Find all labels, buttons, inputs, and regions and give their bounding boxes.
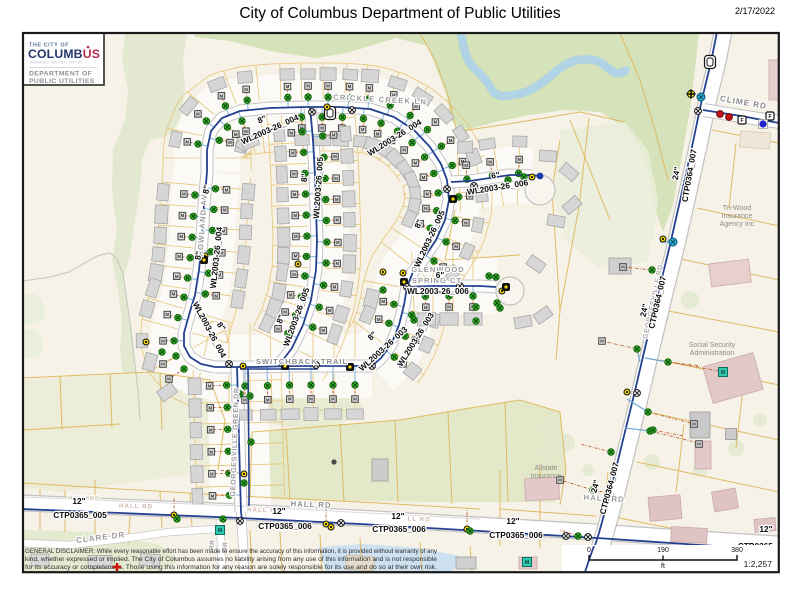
svg-text:M: M (422, 175, 426, 180)
svg-text:M: M (309, 397, 313, 402)
svg-text:M: M (331, 397, 335, 402)
svg-text:M: M (294, 254, 298, 259)
svg-text:M: M (210, 449, 214, 454)
svg-text:M: M (161, 362, 165, 367)
svg-text:M: M (218, 528, 222, 534)
svg-text:M: M (334, 176, 338, 181)
svg-text:M: M (361, 127, 365, 132)
svg-text:M: M (290, 130, 294, 135)
svg-text:M: M (181, 213, 185, 218)
svg-text:8": 8" (299, 173, 310, 182)
svg-text:M: M (336, 218, 340, 223)
svg-text:M: M (276, 326, 280, 331)
svg-text:M: M (424, 305, 428, 310)
svg-text:M: M (600, 339, 604, 344)
svg-text:M: M (208, 383, 212, 388)
svg-text:ft: ft (661, 563, 665, 570)
svg-text:M: M (326, 84, 330, 89)
svg-text:M: M (161, 338, 165, 343)
svg-text:Allstate: Allstate (535, 465, 558, 472)
svg-text:Insurance: Insurance (722, 213, 753, 220)
svg-text:M: M (335, 261, 339, 266)
svg-text:M: M (353, 397, 357, 402)
svg-text:M: M (333, 285, 337, 290)
svg-text:M: M (288, 397, 292, 402)
svg-text:M: M (424, 206, 428, 211)
svg-text:M: M (182, 192, 186, 197)
svg-text:M: M (211, 493, 215, 498)
svg-text:M: M (225, 187, 229, 192)
svg-text:M: M (243, 398, 247, 403)
svg-text:M: M (517, 157, 521, 162)
svg-text:M: M (286, 84, 290, 89)
svg-text:M: M (196, 112, 200, 117)
svg-text:M: M (177, 254, 181, 259)
svg-text:GENERAL DISCLAIMER: While ever: GENERAL DISCLAIMER: While every reasonab… (25, 548, 438, 555)
svg-text:SWITCHBACK TRAIL: SWITCHBACK TRAIL (256, 357, 348, 366)
svg-text:M: M (336, 240, 340, 245)
svg-text:for its accuracy or completene: for its accuracy or completeness. Those … (25, 564, 437, 571)
svg-text:12": 12" (72, 496, 85, 506)
svg-text:380: 380 (731, 547, 743, 554)
svg-text:HALL RD: HALL RD (119, 502, 153, 510)
svg-text:M: M (293, 213, 297, 218)
svg-text:M: M (175, 274, 179, 279)
svg-text:M: M (332, 133, 336, 138)
svg-text:M: M (434, 120, 438, 125)
svg-text:M: M (228, 140, 232, 145)
svg-text:PUBLIC UTILITIES: PUBLIC UTILITIES (29, 78, 95, 85)
svg-text:WL2003-26_006: WL2003-26_006 (407, 286, 469, 296)
svg-text:M: M (333, 154, 337, 159)
svg-text:M: M (426, 192, 430, 197)
svg-text:M: M (210, 471, 214, 476)
svg-text:Agency Inc: Agency Inc (720, 221, 755, 228)
svg-text:12": 12" (759, 524, 772, 534)
svg-text:M: M (292, 172, 296, 177)
svg-text:M: M (214, 293, 218, 298)
svg-text:M: M (209, 427, 213, 432)
svg-text:Administration: Administration (690, 350, 734, 357)
svg-text:COLUMBUS: COLUMBUS (28, 47, 100, 61)
svg-text:M: M (306, 84, 310, 89)
svg-text:M: M (322, 328, 326, 333)
svg-text:Tri-Wood: Tri-Wood (723, 205, 752, 212)
svg-text:12": 12" (391, 511, 404, 521)
svg-text:M: M (186, 139, 190, 144)
svg-text:6": 6" (490, 169, 500, 180)
svg-text:1:2,257: 1:2,257 (744, 559, 773, 569)
svg-text:M: M (293, 192, 297, 197)
svg-text:M: M (244, 87, 248, 92)
svg-text:M: M (179, 234, 183, 239)
svg-text:M: M (166, 312, 170, 317)
svg-text:M: M (220, 93, 224, 98)
svg-text:ANDREW J. GINTHER, MAYOR: ANDREW J. GINTHER, MAYOR (30, 61, 82, 65)
svg-text:M: M (376, 131, 380, 136)
svg-text:8": 8" (192, 250, 203, 260)
svg-text:M: M (320, 126, 324, 131)
svg-text:M: M (447, 305, 451, 310)
svg-text:M: M (266, 397, 270, 402)
svg-text:M: M (525, 560, 529, 566)
svg-text:M: M (223, 208, 227, 213)
svg-text:M: M (454, 244, 458, 249)
svg-text:M: M (234, 132, 238, 137)
svg-text:M: M (414, 161, 418, 166)
svg-text:M: M (328, 308, 332, 313)
svg-text:DEPARTMENT OF: DEPARTMENT OF (29, 71, 92, 78)
svg-text:M: M (368, 86, 372, 91)
svg-text:M: M (464, 163, 468, 168)
svg-text:M: M (488, 159, 492, 164)
svg-text:M: M (291, 151, 295, 156)
svg-text:M: M (692, 422, 696, 427)
svg-text:M: M (621, 265, 625, 270)
svg-text:0: 0 (587, 547, 591, 554)
svg-text:M: M (464, 220, 468, 225)
svg-text:City of Columbus Department of: City of Columbus Department of Public Ut… (239, 5, 561, 22)
svg-text:190: 190 (657, 547, 669, 554)
svg-text:M: M (377, 317, 381, 322)
svg-text:2/17/2022: 2/17/2022 (735, 6, 775, 16)
svg-text:8": 8" (200, 184, 211, 194)
svg-text:M: M (721, 370, 725, 376)
svg-text:M: M (348, 84, 352, 89)
svg-text:12": 12" (506, 516, 519, 526)
svg-text:M: M (167, 377, 171, 382)
svg-text:M: M (172, 292, 176, 297)
svg-text:M: M (283, 310, 287, 315)
svg-text:M: M (292, 272, 296, 277)
svg-text:M: M (289, 293, 293, 298)
svg-text:M: M (697, 442, 701, 447)
svg-text:CTP0365_006: CTP0365_006 (258, 521, 312, 531)
svg-text:CTP0365_006: CTP0365_006 (372, 524, 426, 534)
svg-text:F: F (740, 118, 743, 124)
svg-text:M: M (402, 148, 406, 153)
svg-text:kind, whether expressed or imp: kind, whether expressed or implied. The … (25, 556, 437, 563)
svg-text:CTP0365_006: CTP0365_006 (489, 530, 543, 540)
svg-text:M: M (449, 138, 453, 143)
svg-text:M: M (381, 299, 385, 304)
svg-text:12": 12" (272, 506, 285, 516)
svg-text:Social Security: Social Security (689, 342, 736, 349)
svg-text:F: F (768, 114, 771, 120)
svg-text:CTP0365_005: CTP0365_005 (53, 510, 107, 520)
svg-text:HALL RD: HALL RD (290, 499, 331, 509)
svg-text:LL RD: LL RD (407, 516, 430, 524)
svg-text:M: M (294, 234, 298, 239)
svg-text:M: M (208, 405, 212, 410)
svg-text:M: M (335, 197, 339, 202)
svg-text:6": 6" (436, 270, 445, 280)
svg-text:Insurance: Insurance (531, 473, 562, 480)
